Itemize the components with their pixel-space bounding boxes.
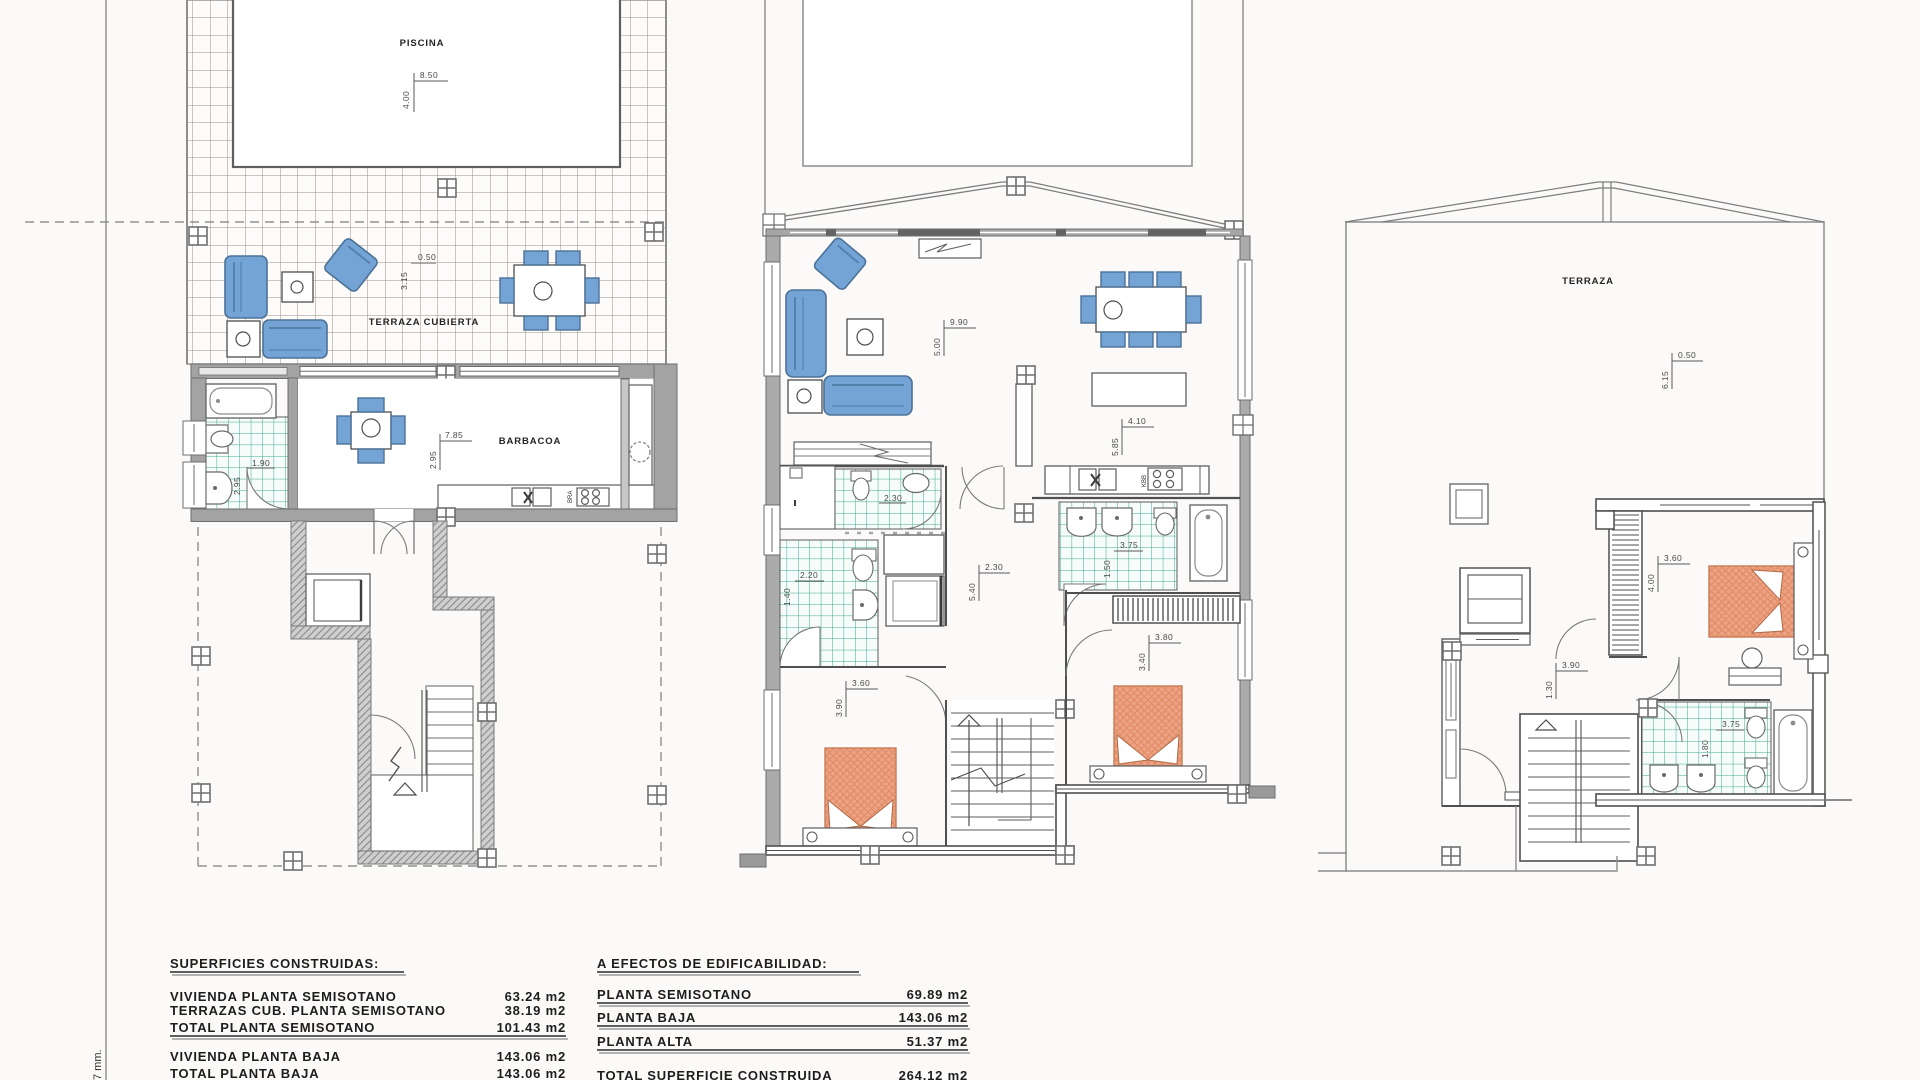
svg-text:5.40: 5.40 (967, 583, 977, 601)
svg-text:KBB: KBB (1142, 475, 1148, 487)
svg-text:4.10: 4.10 (1128, 416, 1146, 426)
svg-text:9.90: 9.90 (950, 317, 968, 327)
svg-text:1.40: 1.40 (782, 588, 792, 606)
svg-text:TOTAL PLANTA SEMISOTANO: TOTAL PLANTA SEMISOTANO (170, 1020, 375, 1035)
svg-text:TOTAL SUPERFICIE CONSTRUIDA: TOTAL SUPERFICIE CONSTRUIDA (597, 1068, 832, 1080)
svg-text:4.00: 4.00 (401, 91, 411, 109)
svg-text:SUPERFICIES CONSTRUIDAS:: SUPERFICIES CONSTRUIDAS: (170, 956, 379, 971)
svg-text:PISCINA: PISCINA (400, 38, 445, 49)
svg-text:2.30: 2.30 (884, 493, 902, 503)
svg-text:TERRAZA: TERRAZA (1562, 276, 1614, 287)
svg-text:PLANTA ALTA: PLANTA ALTA (597, 1034, 693, 1049)
svg-text:3.75: 3.75 (1722, 719, 1740, 729)
svg-text:3.60: 3.60 (852, 678, 870, 688)
svg-text:1.90: 1.90 (252, 458, 270, 468)
svg-text:69.89 m2: 69.89 m2 (907, 987, 968, 1002)
svg-text:1.80: 1.80 (1700, 740, 1710, 758)
svg-text:264.12 m2: 264.12 m2 (899, 1068, 968, 1080)
svg-text:PLANTA BAJA: PLANTA BAJA (597, 1010, 696, 1025)
svg-text:3.40: 3.40 (1137, 653, 1147, 671)
svg-text:51.37 m2: 51.37 m2 (907, 1034, 968, 1049)
svg-text:143.06 m2: 143.06 m2 (497, 1049, 566, 1064)
svg-text:3.90: 3.90 (1562, 660, 1580, 670)
svg-text:3.15: 3.15 (399, 272, 409, 290)
svg-text:0.50: 0.50 (418, 252, 436, 262)
svg-text:3.60: 3.60 (1664, 553, 1682, 563)
svg-text:VIVIENDA PLANTA SEMISOTANO: VIVIENDA PLANTA SEMISOTANO (170, 989, 397, 1004)
svg-text:PLANTA SEMISOTANO: PLANTA SEMISOTANO (597, 987, 752, 1002)
svg-text:8.50: 8.50 (420, 70, 438, 80)
svg-text:101.43 m2: 101.43 m2 (497, 1020, 566, 1035)
svg-text:2.30: 2.30 (985, 562, 1003, 572)
svg-text:3.80: 3.80 (1155, 632, 1173, 642)
svg-text:BARBACOA: BARBACOA (499, 436, 562, 447)
svg-text:5.00: 5.00 (932, 338, 942, 356)
svg-text:1.50: 1.50 (1102, 560, 1112, 578)
svg-text:TERRAZA CUBIERTA: TERRAZA CUBIERTA (369, 317, 479, 328)
svg-text:2.20: 2.20 (800, 570, 818, 580)
svg-text:3.75: 3.75 (1120, 540, 1138, 550)
svg-text:5.85: 5.85 (1110, 438, 1120, 456)
svg-text:7.85: 7.85 (445, 430, 463, 440)
svg-text:BRA: BRA (568, 491, 574, 503)
svg-text:TERRAZAS CUB. PLANTA SEMISOTA: TERRAZAS CUB. PLANTA SEMISOTANO (170, 1003, 446, 1018)
svg-text:3.90: 3.90 (834, 699, 844, 717)
svg-text:4.00: 4.00 (1646, 574, 1656, 592)
svg-text:7 mm.: 7 mm. (92, 1049, 104, 1080)
svg-text:2.95: 2.95 (232, 477, 242, 495)
svg-text:63.24 m2: 63.24 m2 (505, 989, 566, 1004)
svg-text:1.30: 1.30 (1544, 681, 1554, 699)
svg-text:0.50: 0.50 (1678, 350, 1696, 360)
svg-text:143.06 m2: 143.06 m2 (899, 1010, 968, 1025)
svg-text:6.15: 6.15 (1660, 371, 1670, 389)
svg-text:38.19 m2: 38.19 m2 (505, 1003, 566, 1018)
svg-text:2.95: 2.95 (428, 451, 438, 469)
svg-text:143.06 m2: 143.06 m2 (497, 1066, 566, 1080)
svg-text:TOTAL PLANTA BAJA: TOTAL PLANTA BAJA (170, 1066, 319, 1080)
svg-text:A EFECTOS DE EDIFICABILIDAD:: A EFECTOS DE EDIFICABILIDAD: (597, 956, 827, 971)
svg-text:VIVIENDA PLANTA BAJA: VIVIENDA PLANTA BAJA (170, 1049, 341, 1064)
